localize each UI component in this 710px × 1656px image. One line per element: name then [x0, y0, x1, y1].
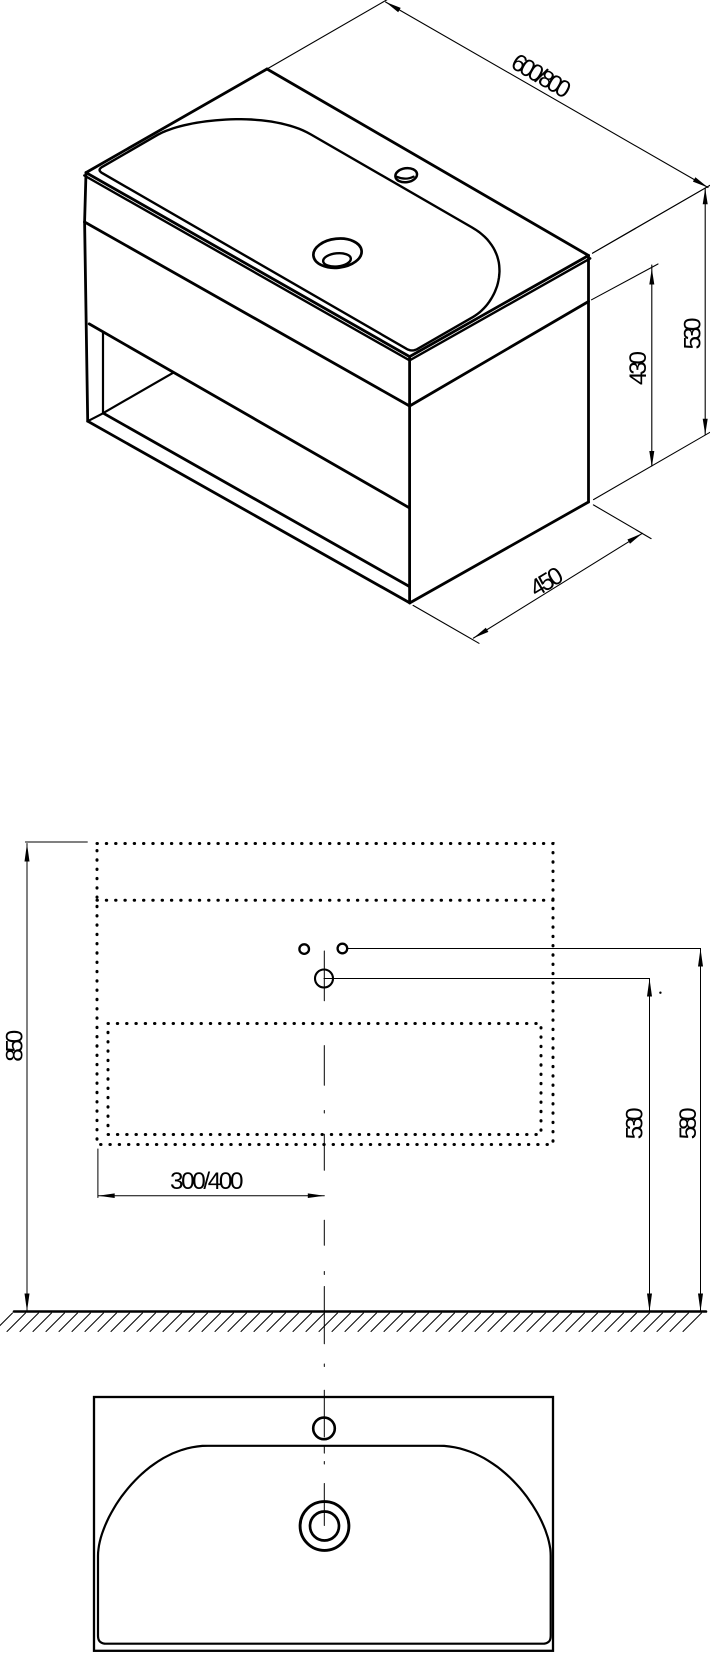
svg-text:300/400: 300/400: [170, 1168, 243, 1195]
svg-text:530: 530: [621, 1107, 648, 1139]
svg-text:850: 850: [1, 1030, 28, 1062]
svg-text:530: 530: [680, 318, 707, 350]
svg-text:430: 430: [625, 351, 652, 385]
svg-text:600/800: 600/800: [506, 49, 575, 105]
svg-text:580: 580: [675, 1107, 702, 1139]
svg-text:450: 450: [525, 562, 568, 603]
